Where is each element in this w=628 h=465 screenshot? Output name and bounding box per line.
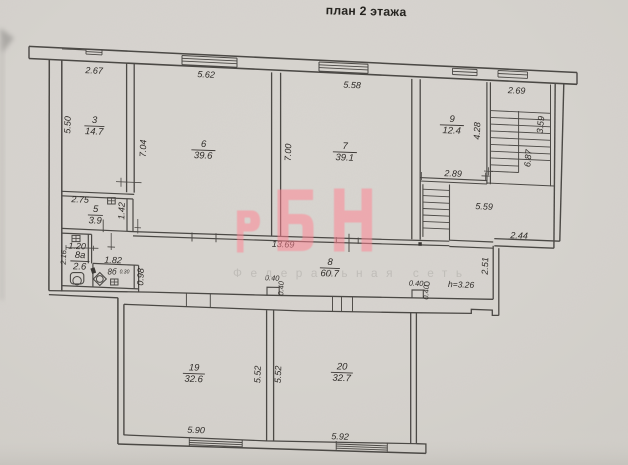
- svg-text:32.7: 32.7: [332, 373, 352, 385]
- svg-text:0.98: 0.98: [135, 268, 146, 286]
- svg-text:8б: 8б: [108, 268, 117, 277]
- svg-text:5.52: 5.52: [252, 365, 263, 383]
- svg-text:5.50: 5.50: [62, 116, 73, 134]
- svg-text:39.6: 39.6: [194, 150, 214, 162]
- svg-text:2.6: 2.6: [72, 261, 87, 273]
- svg-text:3.59: 3.59: [535, 116, 546, 134]
- svg-text:2.75: 2.75: [70, 194, 90, 205]
- svg-text:2.16: 2.16: [59, 249, 69, 266]
- svg-text:2.51: 2.51: [480, 257, 491, 276]
- svg-text:12.4: 12.4: [442, 125, 461, 137]
- svg-text:5.90: 5.90: [187, 425, 205, 436]
- svg-text:0.40: 0.40: [421, 284, 431, 300]
- svg-text:5.52: 5.52: [273, 365, 284, 383]
- svg-text:5.62: 5.62: [197, 69, 215, 80]
- svg-text:32.6: 32.6: [184, 374, 204, 386]
- svg-text:19: 19: [189, 362, 201, 373]
- svg-text:7.04: 7.04: [138, 139, 149, 157]
- svg-text:h=3.26: h=3.26: [448, 279, 475, 290]
- svg-text:2.67: 2.67: [84, 65, 104, 76]
- svg-text:7.00: 7.00: [283, 143, 294, 161]
- svg-text:2.69: 2.69: [507, 85, 526, 96]
- svg-text:6.87: 6.87: [522, 148, 534, 167]
- svg-text:8а: 8а: [75, 250, 86, 261]
- svg-text:3.9: 3.9: [88, 215, 102, 226]
- svg-text:0.30: 0.30: [120, 270, 130, 276]
- svg-text:1.42: 1.42: [116, 202, 127, 220]
- svg-text:4.28: 4.28: [472, 122, 483, 140]
- svg-text:5.58: 5.58: [343, 80, 361, 91]
- svg-text:5.92: 5.92: [331, 431, 349, 442]
- svg-text:0.40: 0.40: [276, 280, 286, 296]
- svg-text:2.44: 2.44: [509, 230, 528, 241]
- svg-text:20: 20: [336, 361, 349, 372]
- svg-text:14.7: 14.7: [85, 126, 105, 138]
- svg-text:1.82: 1.82: [104, 255, 122, 266]
- svg-text:5.59: 5.59: [475, 201, 493, 212]
- svg-text:Федеральная сеть: Федеральная сеть: [233, 266, 465, 280]
- svg-text:план 2 этажа: план 2 этажа: [326, 3, 407, 19]
- svg-text:39.1: 39.1: [335, 152, 354, 164]
- svg-text:2.89: 2.89: [443, 168, 462, 179]
